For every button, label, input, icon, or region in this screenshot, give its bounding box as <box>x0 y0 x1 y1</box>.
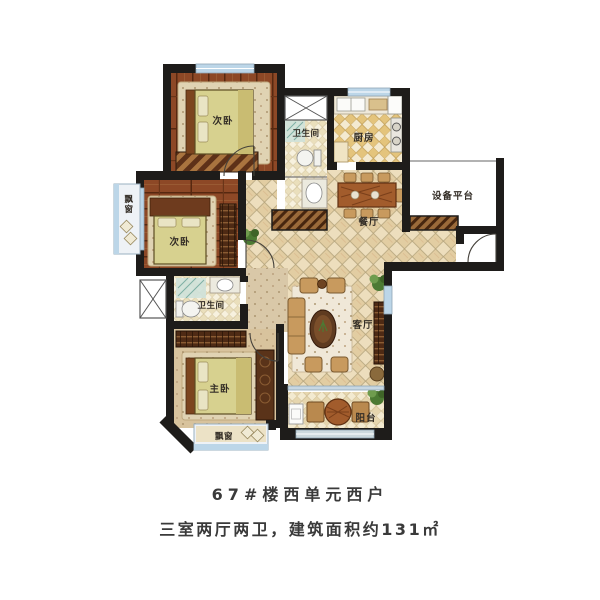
balcony-chair <box>307 402 324 422</box>
bedroom-top-furniture <box>176 82 270 172</box>
bay-window-left-label: 飘窗 <box>124 195 133 215</box>
pillow <box>158 218 176 227</box>
hallway-cabinet <box>272 210 327 230</box>
equipment-platform-label: 设备平台 <box>432 190 474 202</box>
dining-chair <box>361 173 373 182</box>
shaft-x-icon <box>140 280 166 318</box>
fridge <box>388 96 402 114</box>
sink-icon <box>217 279 233 291</box>
bedroom-top-label: 次卧 <box>212 115 233 127</box>
shower-area <box>176 278 206 298</box>
dining-room-label: 餐厅 <box>357 216 379 228</box>
armchair <box>300 278 318 293</box>
pillow <box>198 122 208 142</box>
dining-chair <box>344 209 356 218</box>
toilet-tank <box>314 150 321 166</box>
pillow <box>198 96 208 116</box>
floor-plan-page: 次卧 卫生间 厨房 设备平台 餐厅 次卧 飘窗 卫生间 客厅 主卧 飘窗 阳台 … <box>0 0 600 600</box>
bookshelf <box>220 204 236 266</box>
shaft-x-icon <box>285 96 327 120</box>
caption-specs: 三室两厅两卫，建筑面积约131㎡ <box>0 516 600 540</box>
master-bedroom-label: 主卧 <box>209 383 230 395</box>
blanket <box>236 358 251 414</box>
cutting-board <box>369 99 387 110</box>
armchair <box>327 278 345 293</box>
pillow <box>198 390 208 410</box>
toilet-icon <box>297 150 313 166</box>
living-room-label: 客厅 <box>351 319 373 331</box>
armchair <box>331 357 348 372</box>
wardrobe <box>176 152 258 172</box>
bedroom-middle-furniture <box>148 196 236 266</box>
blanket <box>238 90 253 154</box>
burner-icon <box>393 137 401 145</box>
burner-icon <box>393 123 401 131</box>
balcony-label: 阳台 <box>355 412 376 424</box>
hallway-floor-texture <box>246 268 288 332</box>
balcony-sliding-door <box>288 386 384 390</box>
bedroom-middle-label: 次卧 <box>169 236 190 248</box>
cabinet <box>334 142 348 162</box>
dining-chair <box>378 173 390 182</box>
dresser <box>176 331 246 347</box>
pillow <box>182 218 200 227</box>
bed-headboard <box>186 358 195 414</box>
living-window <box>384 286 392 314</box>
side-table <box>318 280 327 289</box>
sofa <box>288 298 305 354</box>
hatched-wall <box>410 216 458 230</box>
kitchen-label: 厨房 <box>353 132 374 144</box>
plate <box>351 191 359 199</box>
plate <box>371 191 379 199</box>
sink-icon <box>306 183 322 203</box>
bathroom-middle-label: 卫生间 <box>197 300 224 311</box>
floor-plan: 次卧 卫生间 厨房 设备平台 餐厅 次卧 飘窗 卫生间 客厅 主卧 飘窗 阳台 <box>0 0 600 600</box>
dining-chair <box>344 173 356 182</box>
bed-headboard <box>186 90 195 154</box>
bathroom-top-label: 卫生间 <box>292 128 319 139</box>
bay-window-bottom-label: 飘窗 <box>215 431 233 442</box>
bed-headboard <box>150 198 210 216</box>
armchair <box>305 357 322 372</box>
caption-unit: 67#楼西单元西户 <box>0 481 600 505</box>
pillow <box>198 362 208 382</box>
wash-area-fixtures <box>302 179 327 208</box>
pouf <box>370 367 384 381</box>
dining-chair <box>378 209 390 218</box>
